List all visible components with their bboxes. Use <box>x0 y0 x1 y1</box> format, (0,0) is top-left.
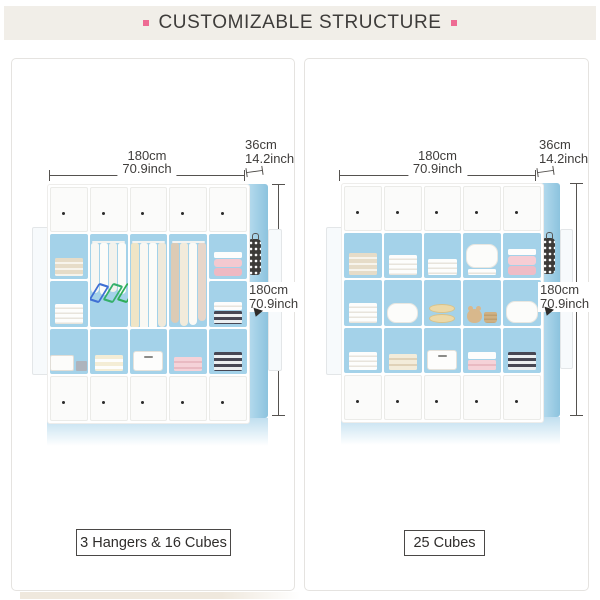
folded-clothes-stack <box>55 258 83 276</box>
storage-box <box>50 355 74 371</box>
depth-dimension-line <box>537 170 554 173</box>
pillow <box>387 303 418 323</box>
cube-shelf-pillow <box>384 280 422 325</box>
variant-label-text: 3 Hangers & 16 Cubes <box>80 535 227 551</box>
cube-shelf-folded-clothes <box>424 233 462 278</box>
cube-door <box>169 376 207 421</box>
cube-door <box>209 376 247 421</box>
cube-shelf-folded-clothes <box>384 233 422 278</box>
title-accent-square-left-icon <box>143 20 149 26</box>
cube-shelf-folded-clothes <box>344 280 382 325</box>
cube-shelf-storage-bin <box>130 329 168 374</box>
cube-shelf-folded-clothes <box>169 329 207 374</box>
variant-label-hangers: 3 Hangers & 16 Cubes <box>76 529 231 556</box>
width-dimension: 180cm 70.9inch <box>339 148 536 178</box>
cube-door <box>90 187 128 232</box>
cube-door <box>384 186 422 231</box>
title-accent-square-right-icon <box>451 20 457 26</box>
cube-door <box>130 187 168 232</box>
pillow <box>466 244 498 268</box>
cube-shelf-pillows <box>209 234 247 279</box>
cube-shelf-pillow <box>463 233 501 278</box>
height-cm-label: 180cm <box>249 283 298 297</box>
cube-door <box>503 186 541 231</box>
width-inch-label: 70.9inch <box>408 162 467 176</box>
panel-cubes-variant: 180cm 70.9inch 36cm 14.2inch 180cm 70.9i… <box>304 58 589 591</box>
depth-cm-label: 36cm <box>245 138 294 152</box>
straw-hat <box>429 304 455 313</box>
cube-door <box>463 375 501 420</box>
title-banner: CUSTOMIZABLE STRUCTURE <box>4 6 596 40</box>
bottom-decor-strip <box>20 592 300 599</box>
cube-door <box>424 375 462 420</box>
cube-door <box>169 187 207 232</box>
storage-bin <box>133 351 163 371</box>
cube-shelf-hats <box>424 280 462 325</box>
depth-dimension-line <box>246 170 263 173</box>
cube-shelf-folded-clothes <box>50 281 88 326</box>
variant-label-cubes: 25 Cubes <box>404 530 485 556</box>
page-title: CUSTOMIZABLE STRUCTURE <box>158 12 441 34</box>
depth-inch-label: 14.2inch <box>539 152 588 166</box>
teddy-bear <box>467 309 482 323</box>
cube-shelf-folded-clothes <box>90 329 128 374</box>
cube-shelf-folded-clothes <box>384 328 422 373</box>
depth-dimension: 36cm 14.2inch <box>539 138 588 166</box>
depth-dimension: 36cm 14.2inch <box>245 138 294 166</box>
width-dimension: 180cm 70.9inch <box>49 148 245 178</box>
cube-shelf-boxes <box>50 329 88 374</box>
cube-shelf-storage-bin <box>424 328 462 373</box>
spare-hangers <box>93 284 128 302</box>
cube-shelf-folded-clothes <box>344 233 382 278</box>
cube-door <box>90 376 128 421</box>
depth-cm-label: 36cm <box>539 138 588 152</box>
cube-door <box>424 186 462 231</box>
cube-door <box>50 376 88 421</box>
height-cm-label: 180cm <box>540 283 589 297</box>
wardrobe-hanger-variant <box>47 184 250 424</box>
wardrobe-cubes-variant <box>341 183 544 423</box>
cube-door <box>50 187 88 232</box>
cube-door <box>503 375 541 420</box>
hanging-section-shirts <box>90 234 128 326</box>
cube-shelf-folded-clothes <box>463 328 501 373</box>
cube-door <box>130 376 168 421</box>
cube-shelf-pillows <box>503 233 541 278</box>
variant-label-text: 25 Cubes <box>413 535 475 551</box>
cube-door <box>344 375 382 420</box>
hanging-section-garments <box>169 234 207 326</box>
cube-shelf-pillow <box>503 280 541 325</box>
hanging-section-garments <box>130 234 168 326</box>
product-image: CUSTOMIZABLE STRUCTURE 180cm 70.9inch 36… <box>0 0 600 600</box>
width-inch-label: 70.9inch <box>117 162 176 176</box>
basket <box>484 312 497 323</box>
cube-shelf-folded-clothes <box>209 281 247 326</box>
straw-hat <box>429 314 455 323</box>
cube-shelf-folded-clothes <box>209 329 247 374</box>
cube-shelf-toys <box>463 280 501 325</box>
cube-door <box>384 375 422 420</box>
cube-door <box>209 187 247 232</box>
cube-shelf-folded-clothes <box>344 328 382 373</box>
depth-inch-label: 14.2inch <box>245 152 294 166</box>
panel-hanger-variant: 180cm 70.9inch 36cm 14.2inch 180cm 70.9i… <box>11 58 295 591</box>
cube-door <box>344 186 382 231</box>
small-box <box>76 361 87 371</box>
storage-bin <box>427 350 457 370</box>
cube-shelf-folded-clothes <box>503 328 541 373</box>
cushion <box>506 301 538 323</box>
cube-shelf-folded-clothes <box>50 234 88 279</box>
cube-door <box>463 186 501 231</box>
